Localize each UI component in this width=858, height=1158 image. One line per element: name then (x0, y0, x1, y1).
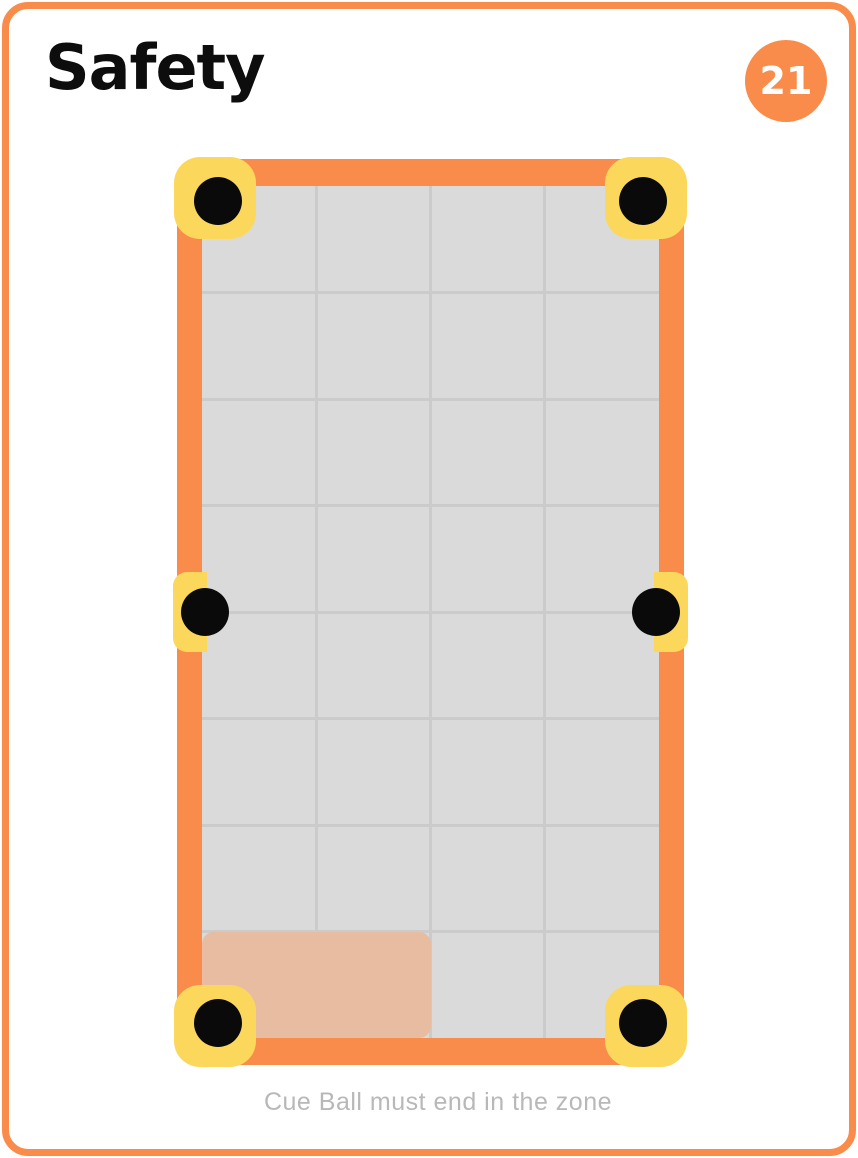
grid-line (202, 398, 659, 401)
grid-line (202, 611, 659, 614)
pocket-hole-middle-left (181, 588, 229, 636)
table-felt (202, 186, 659, 1038)
pocket-hole-top-left (194, 177, 242, 225)
pocket-hole-middle-right (632, 588, 680, 636)
grid-line (202, 504, 659, 507)
pocket-hole-top-right (619, 177, 667, 225)
page-title: Safety (45, 31, 265, 104)
grid-line (202, 824, 659, 827)
grid-line (202, 717, 659, 720)
pocket-hole-bottom-right (619, 999, 667, 1047)
pool-table (177, 159, 684, 1065)
grid-line (202, 291, 659, 294)
pocket-hole-bottom-left (194, 999, 242, 1047)
card-caption: Cue Ball must end in the zone (9, 1088, 858, 1117)
card[interactable]: Safety 21 Cue Ball must end in the zone (2, 2, 856, 1156)
screen: Safety 21 Cue Ball must end in the zone (0, 0, 858, 1158)
card-number-badge: 21 (745, 40, 827, 122)
